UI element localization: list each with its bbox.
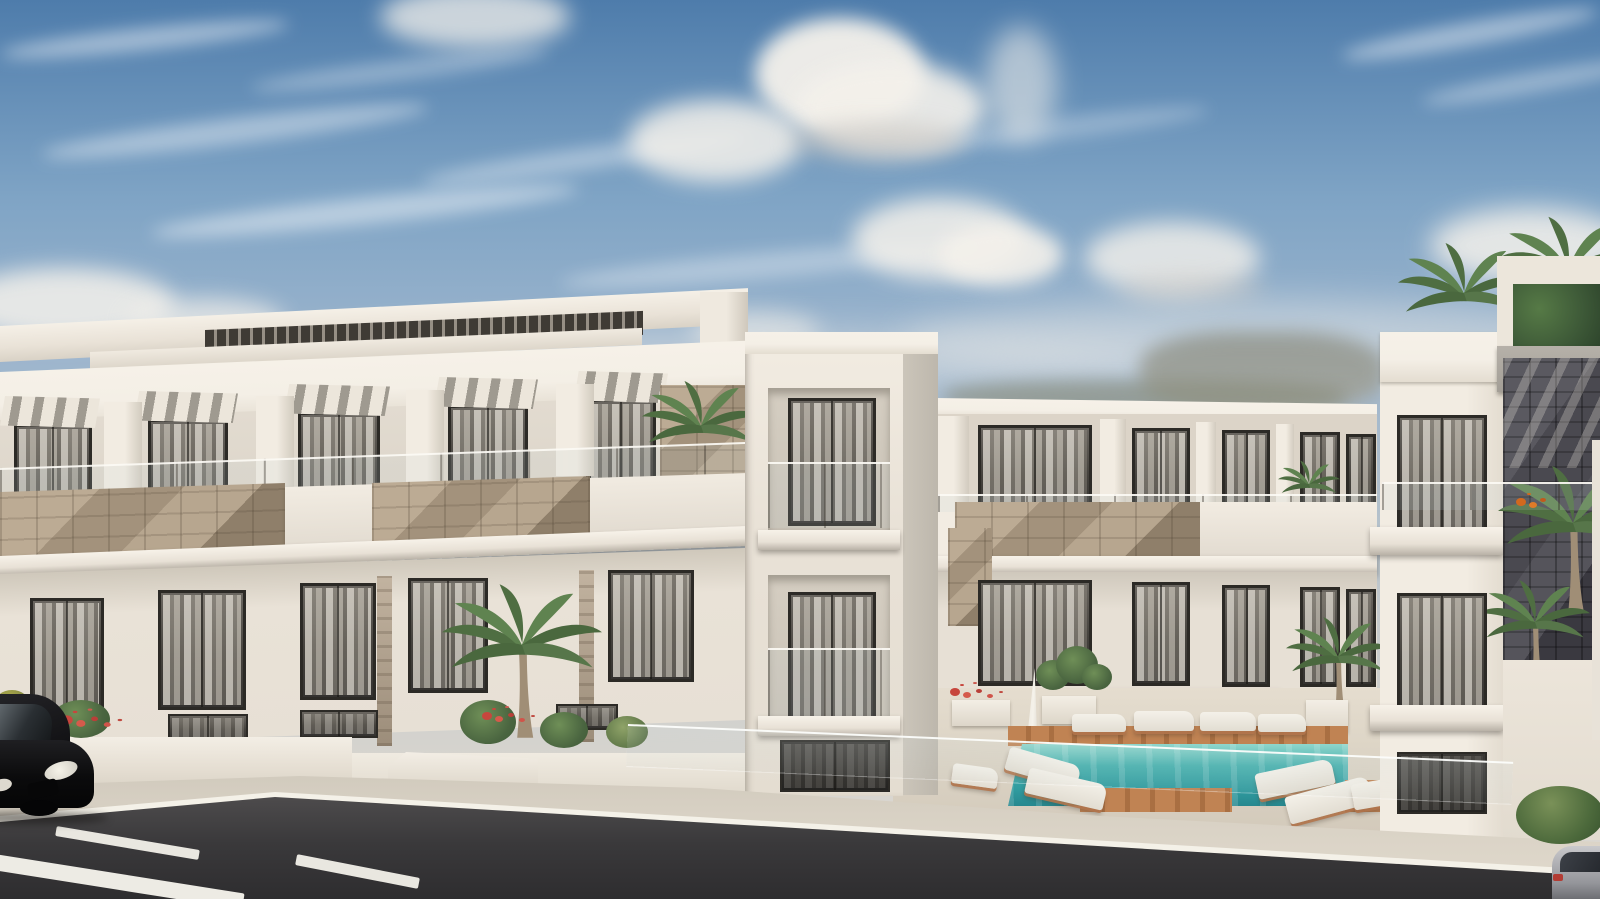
ground-window <box>300 710 378 738</box>
car-wheel <box>20 800 58 816</box>
window <box>1222 585 1270 687</box>
window <box>158 590 246 710</box>
sun-lounger <box>1072 714 1126 732</box>
car-window <box>1560 852 1600 872</box>
window <box>300 583 376 700</box>
cloud <box>985 26 1057 141</box>
planter-greenery <box>540 712 588 748</box>
cloud-wisp <box>40 94 430 167</box>
tower-side-face <box>903 345 938 795</box>
cloud-wisp <box>250 42 550 98</box>
balcony-slab <box>1370 705 1503 731</box>
balcony-slab <box>1370 527 1503 555</box>
cloud-wisp <box>1420 52 1600 112</box>
cloud-wisp <box>0 13 290 65</box>
glass-railing <box>768 648 890 716</box>
leafy-plant <box>1082 664 1112 690</box>
sun-lounger <box>1200 712 1256 731</box>
window <box>1397 593 1487 713</box>
glass-railing <box>768 462 890 528</box>
balcony-slab <box>758 530 900 550</box>
striped-awning <box>434 377 538 409</box>
balcony-parapet <box>1200 502 1377 558</box>
glass-railing <box>1382 482 1600 510</box>
cloud-wisp <box>150 176 580 247</box>
cloud <box>628 100 803 182</box>
planter-box <box>952 700 1010 726</box>
tower-fascia <box>745 332 938 354</box>
window <box>608 570 694 682</box>
planter-greenery <box>460 700 516 744</box>
flower-accent <box>1516 498 1526 506</box>
striped-awning <box>134 391 238 423</box>
architectural-render-scene <box>0 0 1600 899</box>
flowers <box>950 688 960 696</box>
cloud <box>1120 275 1265 303</box>
flowers <box>482 712 492 720</box>
cloud <box>938 224 1063 286</box>
edge-building-sliver <box>1592 440 1600 740</box>
sun-lounger <box>1134 711 1194 731</box>
window <box>1397 415 1487 532</box>
bush <box>1516 786 1600 844</box>
striped-awning <box>0 396 100 428</box>
cloud <box>380 0 570 48</box>
cloud-wisp <box>1340 0 1600 68</box>
car-taillight <box>1553 874 1563 881</box>
window <box>1132 582 1190 686</box>
sun-lounger <box>1258 714 1306 732</box>
striped-awning <box>284 384 390 416</box>
rooftop-plants <box>1513 284 1600 346</box>
marble-strip <box>377 576 392 746</box>
tower-fascia <box>1380 332 1503 382</box>
cloud <box>790 122 965 160</box>
